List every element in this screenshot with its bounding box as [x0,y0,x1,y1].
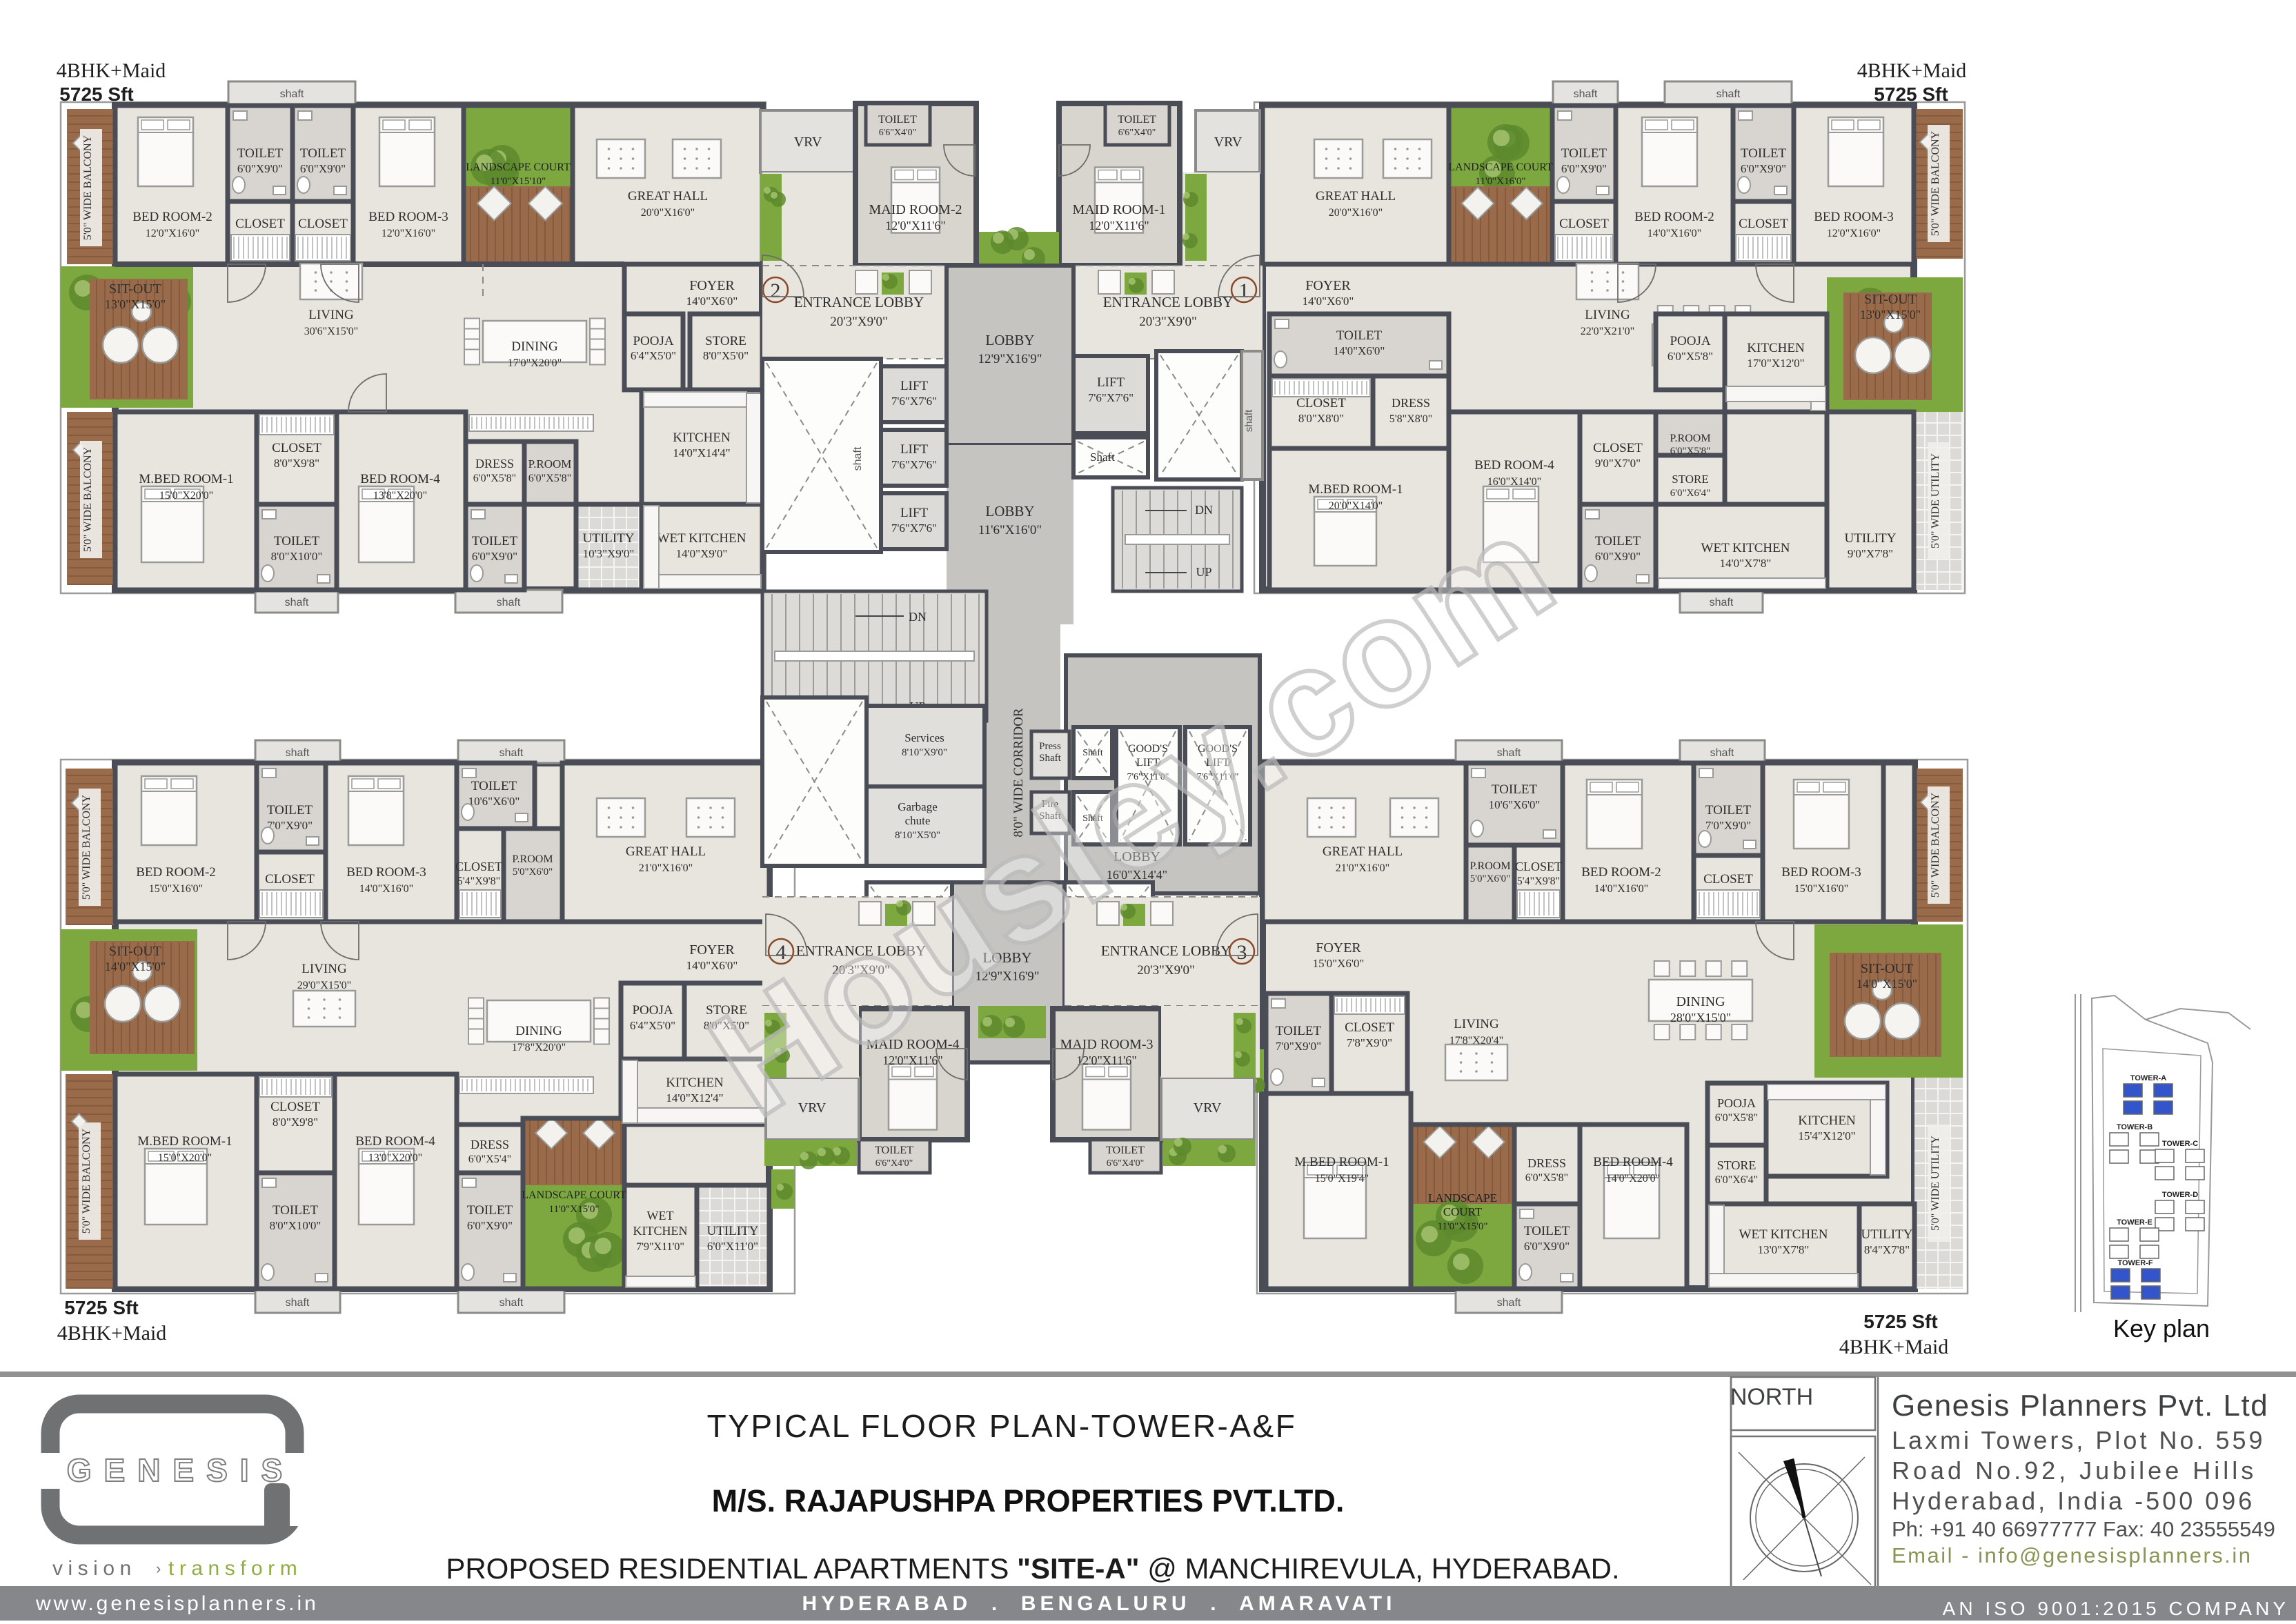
svg-text:17'0"X12'0": 17'0"X12'0" [1747,357,1804,370]
svg-text:TOILET: TOILET [472,534,518,548]
svg-text:6'6"X4'0": 6'6"X4'0" [1107,1158,1145,1169]
svg-text:LOBBY: LOBBY [985,332,1034,348]
svg-text:6'0"X9'0": 6'0"X9'0" [237,162,283,175]
svg-text:14'0"X6'0": 14'0"X6'0" [686,295,738,308]
svg-text:BED ROOM-2: BED ROOM-2 [1634,210,1714,224]
svg-text:GREAT HALL: GREAT HALL [1316,189,1396,204]
svg-text:TOWER-B: TOWER-B [2117,1123,2152,1131]
svg-text:9'0"X7'0": 9'0"X7'0" [1595,457,1641,470]
svg-text:VRV: VRV [1194,1100,1222,1116]
svg-text:14'0"X9'0": 14'0"X9'0" [676,547,728,560]
svg-text:5'0" WIDE BALCONY: 5'0" WIDE BALCONY [81,794,92,900]
svg-text:shaft: shaft [499,1297,524,1309]
svg-text:10'3"X9'0": 10'3"X9'0" [583,547,635,560]
svg-text:5725 Sft: 5725 Sft [64,1297,138,1318]
svg-text:LANDSCAPE COURT: LANDSCAPE COURT [1448,161,1553,173]
svg-text:CLOSET: CLOSET [235,217,285,231]
svg-text:12'9"X16'9": 12'9"X16'9" [978,352,1042,366]
svg-text:DRESS: DRESS [1392,396,1430,410]
svg-text:M/S. RAJAPUSHPA PROPERTIES PVT: M/S. RAJAPUSHPA PROPERTIES PVT.LTD. [712,1483,1345,1518]
svg-text:WET KITCHEN: WET KITCHEN [657,531,746,546]
svg-text:6'0"X5'8": 6'0"X5'8" [1667,350,1713,363]
svg-text:15'0"X19'4": 15'0"X19'4" [1315,1173,1369,1185]
svg-text:11'0"X15'0": 11'0"X15'0" [549,1204,600,1215]
svg-text:DINING: DINING [511,339,558,354]
svg-text:P.ROOM: P.ROOM [528,457,572,471]
svg-text:DRESS: DRESS [471,1138,509,1151]
svg-text:TOILET: TOILET [1705,803,1752,818]
svg-text:6'0"X5'8": 6'0"X5'8" [1670,446,1710,457]
svg-text:5'0" WIDE UTILITY: 5'0" WIDE UTILITY [1930,453,1941,548]
svg-text:TYPICAL FLOOR PLAN-TOWER-A&F: TYPICAL FLOOR PLAN-TOWER-A&F [707,1408,1297,1444]
svg-text:PROPOSED RESIDENTIAL APARTMENT: PROPOSED RESIDENTIAL APARTMENTS "SITE-A"… [446,1552,1619,1585]
svg-text:KITCHEN: KITCHEN [673,430,731,445]
svg-text:8'4"X7'8": 8'4"X7'8" [1864,1243,1910,1256]
svg-text:TOILET: TOILET [1118,114,1156,126]
svg-text:VRV: VRV [1214,135,1243,150]
svg-text:6'0"X5'4": 6'0"X5'4" [468,1153,511,1165]
svg-text:22'0"X21'0": 22'0"X21'0" [1581,326,1634,337]
svg-text:13'0"X15'0": 13'0"X15'0" [1860,308,1921,321]
svg-text:LANDSCAPE: LANDSCAPE [1428,1191,1497,1205]
svg-text:P.ROOM: P.ROOM [512,853,553,865]
svg-text:8'0"X9'8": 8'0"X9'8" [273,1116,318,1129]
svg-text:BED ROOM-3: BED ROOM-3 [1781,865,1861,880]
svg-text:TOILET: TOILET [267,803,313,818]
svg-text:LIVING: LIVING [308,308,354,322]
svg-text:14'0"X15'0": 14'0"X15'0" [1857,977,1917,991]
svg-text:14'0"X6'0": 14'0"X6'0" [1303,295,1354,308]
svg-text:shaft: shaft [499,747,524,759]
svg-text:29'0"X15'0": 29'0"X15'0" [297,980,351,991]
svg-text:DRESS: DRESS [475,457,514,471]
svg-text:CLOSET: CLOSET [1559,217,1609,231]
svg-text:M.BED ROOM-1: M.BED ROOM-1 [1294,1155,1389,1169]
svg-text:5'0" WIDE BALCONY: 5'0" WIDE BALCONY [1930,792,1941,898]
svg-text:6'0"X9'0": 6'0"X9'0" [1595,550,1641,563]
svg-text:LIVING: LIVING [1454,1017,1499,1031]
svg-text:12'0"X11'6": 12'0"X11'6" [1089,219,1149,232]
svg-text:LIFT: LIFT [900,379,929,393]
svg-text:4BHK+Maid: 4BHK+Maid [1839,1336,1949,1358]
svg-text:6'0"X5'8": 6'0"X5'8" [1715,1112,1758,1124]
svg-text:P.ROOM: P.ROOM [1670,433,1710,444]
svg-text:BED ROOM-4: BED ROOM-4 [1593,1155,1673,1169]
svg-text:STORE: STORE [1672,473,1709,486]
svg-text:6'6"X4'0": 6'6"X4'0" [875,1158,913,1169]
svg-text:LIVING: LIVING [1585,308,1630,322]
svg-text:3: 3 [1237,941,1247,964]
svg-text:UTILITY: UTILITY [1845,531,1897,546]
svg-text:8'10"X9'0": 8'10"X9'0" [902,747,947,758]
svg-text:LOBBY: LOBBY [985,503,1034,519]
svg-text:6'0"X9'0": 6'0"X9'0" [1561,162,1607,175]
svg-text:HYDERABAD . BENGALURU . AM: HYDERABAD . BENGALURU . AMARAVATI [802,1592,1396,1615]
svg-text:›: › [156,1560,161,1577]
svg-text:7'0"X9'0": 7'0"X9'0" [267,819,313,832]
svg-text:LIFT: LIFT [1097,375,1125,390]
svg-text:8'0"X5'0": 8'0"X5'0" [703,349,749,362]
svg-text:TOILET: TOILET [875,1145,913,1156]
svg-text:7'0"X9'0": 7'0"X9'0" [1705,819,1751,832]
svg-text:14'0"X15'0": 14'0"X15'0" [105,960,166,973]
svg-text:4BHK+Maid: 4BHK+Maid [57,59,166,82]
svg-text:POOJA: POOJA [633,334,673,348]
svg-text:7'6"X7'6": 7'6"X7'6" [891,395,937,408]
svg-text:17'8"X20'0": 17'8"X20'0" [512,1042,566,1053]
svg-text:12'0"X16'0": 12'0"X16'0" [1827,228,1881,239]
svg-text:14'0"X6'0": 14'0"X6'0" [686,959,738,972]
svg-text:TOWER-D: TOWER-D [2162,1191,2198,1199]
svg-text:16'0"X14'0": 16'0"X14'0" [1487,476,1541,488]
svg-text:9'0"X7'8": 9'0"X7'8" [1848,547,1893,560]
svg-text:www.genesisplanners.in: www.genesisplanners.in [35,1592,319,1615]
svg-text:20'0"X16'0": 20'0"X16'0" [1329,207,1383,219]
svg-text:DINING: DINING [1676,994,1725,1009]
svg-text:BED ROOM-3: BED ROOM-3 [368,210,448,224]
svg-text:TOILET: TOILET [1741,146,1787,161]
svg-text:POOJA: POOJA [1670,334,1710,348]
svg-text:STORE: STORE [1717,1158,1756,1172]
svg-text:5'0" WIDE BALCONY: 5'0" WIDE BALCONY [81,1128,92,1234]
svg-text:ENTRANCE LOBBY: ENTRANCE LOBBY [1103,294,1233,310]
svg-text:14'0"X12'4": 14'0"X12'4" [666,1091,723,1105]
svg-text:6'0"X5'8": 6'0"X5'8" [1525,1172,1568,1184]
svg-text:13'0"X15'0": 13'0"X15'0" [105,297,166,311]
svg-text:1: 1 [1239,279,1249,302]
svg-text:transform: transform [168,1557,302,1580]
svg-text:5'0" WIDE UTILITY: 5'0" WIDE UTILITY [1930,1136,1941,1231]
svg-text:5725 Sft: 5725 Sft [1863,1311,1937,1332]
svg-text:BED ROOM-3: BED ROOM-3 [1814,210,1894,224]
svg-text:7'8"X9'0": 7'8"X9'0" [1347,1036,1392,1049]
svg-text:shaft: shaft [1497,747,1521,759]
svg-text:7'6"X7'6": 7'6"X7'6" [891,522,937,535]
svg-text:TOWER-E: TOWER-E [2117,1218,2152,1227]
svg-text:UTILITY: UTILITY [1861,1227,1913,1242]
svg-text:TOILET: TOILET [467,1203,513,1218]
svg-text:5'0"X6'0": 5'0"X6'0" [513,867,553,878]
svg-text:8'0"X10'0": 8'0"X10'0" [271,550,323,563]
svg-text:ENTRANCE LOBBY: ENTRANCE LOBBY [1101,942,1231,959]
svg-text:POOJA: POOJA [632,1003,673,1018]
svg-text:4BHK+Maid: 4BHK+Maid [57,1322,167,1345]
svg-text:M.BED ROOM-1: M.BED ROOM-1 [139,472,233,486]
svg-text:CLOSET: CLOSET [1593,441,1643,455]
svg-text:shaft: shaft [1710,597,1734,608]
svg-text:6'4"X5'0": 6'4"X5'0" [631,349,676,362]
svg-text:shaft: shaft [1574,88,1598,100]
svg-text:6'0"X5'8": 6'0"X5'8" [528,473,571,484]
svg-text:KITCHEN: KITCHEN [633,1224,688,1238]
svg-text:6'0"X5'8": 6'0"X5'8" [473,473,516,484]
svg-text:14'0"X6'0": 14'0"X6'0" [1334,344,1385,357]
svg-text:10'6"X6'0": 10'6"X6'0" [468,795,520,808]
svg-text:CLOSET: CLOSET [265,872,315,887]
svg-text:TOILET: TOILET [471,779,517,793]
svg-text:12'0"X16'0": 12'0"X16'0" [146,228,199,239]
svg-text:STORE: STORE [705,334,746,348]
svg-text:SIT-OUT: SIT-OUT [109,281,161,297]
svg-text:5'0" WIDE BALCONY: 5'0" WIDE BALCONY [82,135,94,240]
svg-text:GREAT HALL: GREAT HALL [1323,844,1403,859]
svg-text:Road No.92, Jubilee Hills: Road No.92, Jubilee Hills [1892,1456,2257,1485]
svg-text:CLOSET: CLOSET [298,217,348,231]
svg-text:20'0"X14'0": 20'0"X14'0" [1329,500,1383,512]
svg-text:WET: WET [647,1209,674,1222]
svg-text:7'9"X11'0": 7'9"X11'0" [636,1241,684,1253]
svg-text:TOILET: TOILET [1106,1145,1145,1156]
svg-text:shaft: shaft [286,1297,310,1309]
svg-text:BED ROOM-4: BED ROOM-4 [1474,458,1554,473]
svg-text:TOWER-F: TOWER-F [2117,1259,2152,1267]
svg-text:14'0"X16'0": 14'0"X16'0" [1594,883,1648,895]
svg-text:21'0"X16'0": 21'0"X16'0" [1336,862,1389,874]
svg-text:15'0"X6'0": 15'0"X6'0" [1313,957,1365,970]
svg-text:BED ROOM-2: BED ROOM-2 [136,865,216,880]
svg-text:SIT-OUT: SIT-OUT [109,944,161,959]
svg-text:MAID ROOM-1: MAID ROOM-1 [1073,202,1166,217]
svg-text:CLOSET: CLOSET [1739,217,1788,231]
svg-text:FOYER: FOYER [689,942,735,958]
svg-text:shaft: shaft [1716,88,1741,100]
svg-text:CLOSET: CLOSET [272,441,321,455]
svg-text:6'6"X4'0": 6'6"X4'0" [1118,128,1156,138]
svg-text:shaft: shaft [852,446,864,471]
svg-text:20'3"X9'0": 20'3"X9'0" [1139,315,1197,329]
svg-text:Genesis Planners Pvt. Ltd: Genesis Planners Pvt. Ltd [1892,1389,2268,1423]
svg-text:11'6"X16'0": 11'6"X16'0" [978,523,1042,537]
svg-text:CLOSET: CLOSET [1296,396,1346,410]
svg-text:14'0"X14'4": 14'0"X14'4" [673,446,730,459]
svg-text:shaft: shaft [286,747,310,759]
svg-text:TOILET: TOILET [274,534,320,548]
svg-text:5725 Sft: 5725 Sft [59,83,133,105]
svg-text:MAID ROOM-3: MAID ROOM-3 [1060,1037,1154,1052]
svg-text:Laxmi Towers, Plot No. 559: Laxmi Towers, Plot No. 559 [1892,1426,2266,1454]
svg-text:6'0"X9'0": 6'0"X9'0" [472,550,517,563]
svg-text:6'0"X9'0": 6'0"X9'0" [300,162,346,175]
svg-text:GREAT HALL: GREAT HALL [628,189,708,204]
svg-text:KITCHEN: KITCHEN [1798,1113,1856,1128]
svg-text:LIFT: LIFT [900,442,929,457]
svg-text:vision: vision [52,1557,137,1580]
svg-text:6'0"X11'0": 6'0"X11'0" [707,1240,758,1253]
svg-text:20'3"X9'0": 20'3"X9'0" [830,315,888,329]
svg-text:13'8"X20'0": 13'8"X20'0" [373,490,427,502]
svg-text:12'0"X11'6": 12'0"X11'6" [885,219,946,232]
svg-text:8'0"X9'8": 8'0"X9'8" [274,457,319,470]
svg-text:TOILET: TOILET [1336,328,1383,343]
svg-text:GREAT HALL: GREAT HALL [626,844,706,859]
svg-text:shaft: shaft [1710,747,1734,759]
svg-text:BED ROOM-2: BED ROOM-2 [1581,865,1661,880]
svg-text:7'0"X9'0": 7'0"X9'0" [1276,1040,1321,1053]
svg-text:15'0"X16'0": 15'0"X16'0" [1794,883,1848,895]
svg-text:TOILET: TOILET [1524,1224,1570,1238]
svg-text:15'0"X20'0": 15'0"X20'0" [158,1152,212,1164]
svg-text:BED ROOM-2: BED ROOM-2 [132,210,212,224]
svg-text:11'0"X15'10": 11'0"X15'10" [491,176,546,187]
svg-text:6'0"X6'4": 6'0"X6'4" [1670,488,1710,499]
svg-text:5725 Sft: 5725 Sft [1874,83,1948,105]
svg-text:WET KITCHEN: WET KITCHEN [1701,541,1790,555]
svg-text:20'0"X16'0": 20'0"X16'0" [641,207,695,219]
svg-text:LANDSCAPE COURT: LANDSCAPE COURT [522,1189,626,1201]
svg-text:DINING: DINING [515,1024,562,1038]
svg-text:VRV: VRV [794,135,822,150]
svg-text:14'0"X16'0": 14'0"X16'0" [1647,228,1701,239]
svg-text:Hyderabad, India -500 096: Hyderabad, India -500 096 [1892,1487,2255,1515]
svg-text:15'0"X20'0": 15'0"X20'0" [159,490,213,502]
svg-text:13'0"X7'8": 13'0"X7'8" [1758,1243,1810,1256]
svg-text:FOYER: FOYER [1305,278,1351,293]
svg-text:P.ROOM: P.ROOM [1469,860,1510,872]
svg-text:6'0"X9'0": 6'0"X9'0" [467,1219,513,1232]
svg-text:AN ISO 9001:2015 COMPANY: AN ISO 9001:2015 COMPANY [1943,1598,2289,1619]
svg-text:MAID ROOM-2: MAID ROOM-2 [869,202,962,217]
svg-text:NORTH: NORTH [1730,1384,1813,1410]
svg-text:CLOSET: CLOSET [1703,872,1753,887]
svg-text:TOWER-C: TOWER-C [2162,1140,2198,1148]
svg-text:20'3"X9'0": 20'3"X9'0" [1137,963,1195,978]
svg-text:6'0"X9'0": 6'0"X9'0" [1741,162,1786,175]
svg-text:BED ROOM-4: BED ROOM-4 [355,1134,435,1149]
svg-text:11'0"X15'0": 11'0"X15'0" [1438,1221,1488,1232]
svg-text:shaft: shaft [285,597,309,608]
svg-text:shaft: shaft [280,88,304,100]
svg-text:DN: DN [909,610,927,624]
svg-text:11'0"X16'0": 11'0"X16'0" [1476,176,1526,187]
svg-text:Services: Services [904,731,944,744]
svg-text:14'0"X7'8": 14'0"X7'8" [1720,557,1772,570]
svg-text:4BHK+Maid: 4BHK+Maid [1857,59,1967,82]
svg-text:TOILET: TOILET [1492,782,1538,797]
svg-text:Garbage: Garbage [898,800,938,813]
svg-text:UP: UP [1196,565,1211,579]
svg-text:LIFT: LIFT [900,506,929,520]
svg-text:8'0"X8'0": 8'0"X8'0" [1298,412,1344,425]
svg-text:12'0"X11'6": 12'0"X11'6" [1076,1053,1137,1067]
svg-text:21'0"X16'0": 21'0"X16'0" [639,862,693,874]
svg-text:chute: chute [905,814,931,827]
svg-text:15'4"X12'0": 15'4"X12'0" [1798,1129,1855,1142]
svg-text:17'0"X20'0": 17'0"X20'0" [508,357,562,369]
svg-text:WET KITCHEN: WET KITCHEN [1739,1227,1828,1242]
svg-text:FOYER: FOYER [1316,940,1361,955]
svg-text:LIVING: LIVING [301,962,347,976]
svg-text:TOILET: TOILET [273,1203,319,1218]
svg-text:KITCHEN: KITCHEN [1747,341,1805,355]
svg-text:5'0"X6'0": 5'0"X6'0" [1470,873,1510,884]
svg-text:8'10"X5'0": 8'10"X5'0" [895,830,940,841]
svg-text:12'0"X16'0": 12'0"X16'0" [382,228,435,239]
svg-text:Shaft: Shaft [1090,450,1115,464]
svg-text:6'4"X5'0": 6'4"X5'0" [630,1019,675,1032]
svg-text:POOJA: POOJA [1717,1096,1756,1110]
svg-text:TOWER-A: TOWER-A [2130,1074,2166,1082]
svg-text:7'6"X7'6": 7'6"X7'6" [1088,391,1134,404]
svg-text:10'6"X6'0": 10'6"X6'0" [1489,798,1541,811]
svg-text:BED ROOM-3: BED ROOM-3 [346,865,426,880]
svg-text:SIT-OUT: SIT-OUT [1861,961,1913,976]
svg-text:Ph: +91 40 66977777 Fax: 40 23: Ph: +91 40 66977777 Fax: 40 23555549 [1892,1517,2275,1541]
svg-text:TOILET: TOILET [1595,534,1641,548]
svg-text:shaft: shaft [1243,409,1255,432]
svg-text:COURT: COURT [1443,1205,1483,1218]
svg-text:LANDSCAPE COURT: LANDSCAPE COURT [466,161,571,173]
svg-text:BED ROOM-4: BED ROOM-4 [360,472,440,486]
svg-text:5'0" WIDE BALCONY: 5'0" WIDE BALCONY [1930,130,1941,236]
svg-text:5'4"X9'8": 5'4"X9'8" [1517,875,1560,887]
svg-text:KITCHEN: KITCHEN [666,1076,724,1090]
svg-text:TOILET: TOILET [1561,146,1607,161]
svg-text:14'0"X16'0": 14'0"X16'0" [359,883,413,895]
svg-text:Key plan: Key plan [2113,1314,2210,1343]
svg-text:UTILITY: UTILITY [583,531,635,546]
svg-text:15'0"X16'0": 15'0"X16'0" [149,883,203,895]
svg-text:FOYER: FOYER [689,278,735,293]
svg-text:M.BED ROOM-1: M.BED ROOM-1 [137,1134,232,1149]
svg-text:6'0"X6'4": 6'0"X6'4" [1715,1174,1758,1186]
svg-text:shaft: shaft [1497,1297,1521,1309]
svg-text:ENTRANCE LOBBY: ENTRANCE LOBBY [794,294,924,310]
svg-text:DN: DN [1195,503,1213,517]
svg-text:CLOSET: CLOSET [455,860,502,873]
svg-text:TOILET: TOILET [878,114,917,126]
svg-text:6'0"X9'0": 6'0"X9'0" [1524,1240,1570,1253]
svg-text:Email - info@genesisplanners.i: Email - info@genesisplanners.in [1892,1543,2253,1567]
svg-text:CLOSET: CLOSET [270,1100,320,1114]
svg-text:30'6"X15'0": 30'6"X15'0" [304,326,358,337]
svg-text:GENESIS: GENESIS [67,1452,295,1488]
svg-text:7'6"X7'6": 7'6"X7'6" [891,458,937,471]
svg-text:M.BED ROOM-1: M.BED ROOM-1 [1308,482,1403,497]
svg-text:UTILITY: UTILITY [707,1224,759,1238]
svg-text:5'8"X8'0": 5'8"X8'0" [1389,413,1432,425]
svg-text:13'0"X20'0": 13'0"X20'0" [368,1152,422,1164]
svg-text:shaft: shaft [497,597,521,608]
svg-text:Press: Press [1039,741,1061,752]
svg-text:14'0"X20'0": 14'0"X20'0" [1606,1173,1660,1185]
svg-text:6'6"X4'0": 6'6"X4'0" [879,128,917,138]
svg-text:DRESS: DRESS [1527,1156,1566,1170]
svg-text:TOILET: TOILET [300,146,346,161]
svg-text:2: 2 [771,279,781,302]
svg-text:5'4"X9'8": 5'4"X9'8" [457,875,500,887]
svg-text:5'0" WIDE BALCONY: 5'0" WIDE BALCONY [82,446,94,552]
svg-text:TOILET: TOILET [1276,1024,1322,1038]
svg-text:CLOSET: CLOSET [1345,1020,1394,1035]
svg-text:CLOSET: CLOSET [1515,860,1562,873]
svg-text:28'0"X15'0": 28'0"X15'0" [1670,1011,1731,1024]
svg-text:TOILET: TOILET [237,146,284,161]
svg-text:8'0"X10'0": 8'0"X10'0" [270,1219,321,1232]
svg-text:SIT-OUT: SIT-OUT [1864,292,1917,307]
